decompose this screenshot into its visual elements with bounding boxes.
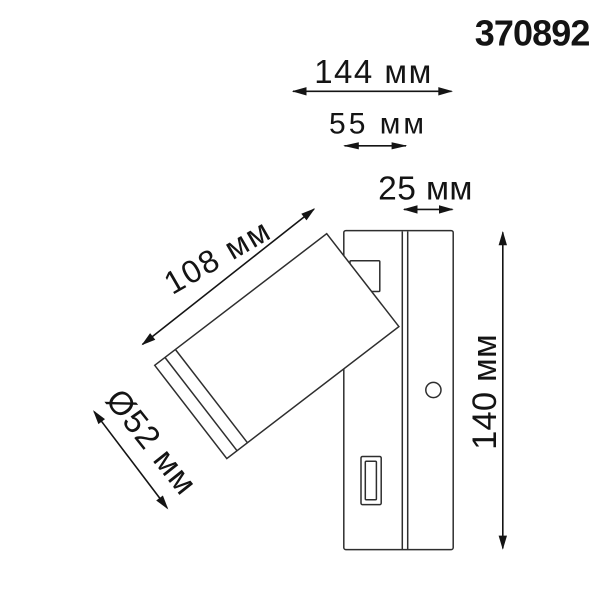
svg-text:370892: 370892 xyxy=(475,13,590,54)
svg-text:140 мм: 140 мм xyxy=(466,334,504,450)
svg-text:25 мм: 25 мм xyxy=(378,171,473,208)
svg-text:144 мм: 144 мм xyxy=(314,53,433,90)
svg-text:55 мм: 55 мм xyxy=(329,108,427,141)
